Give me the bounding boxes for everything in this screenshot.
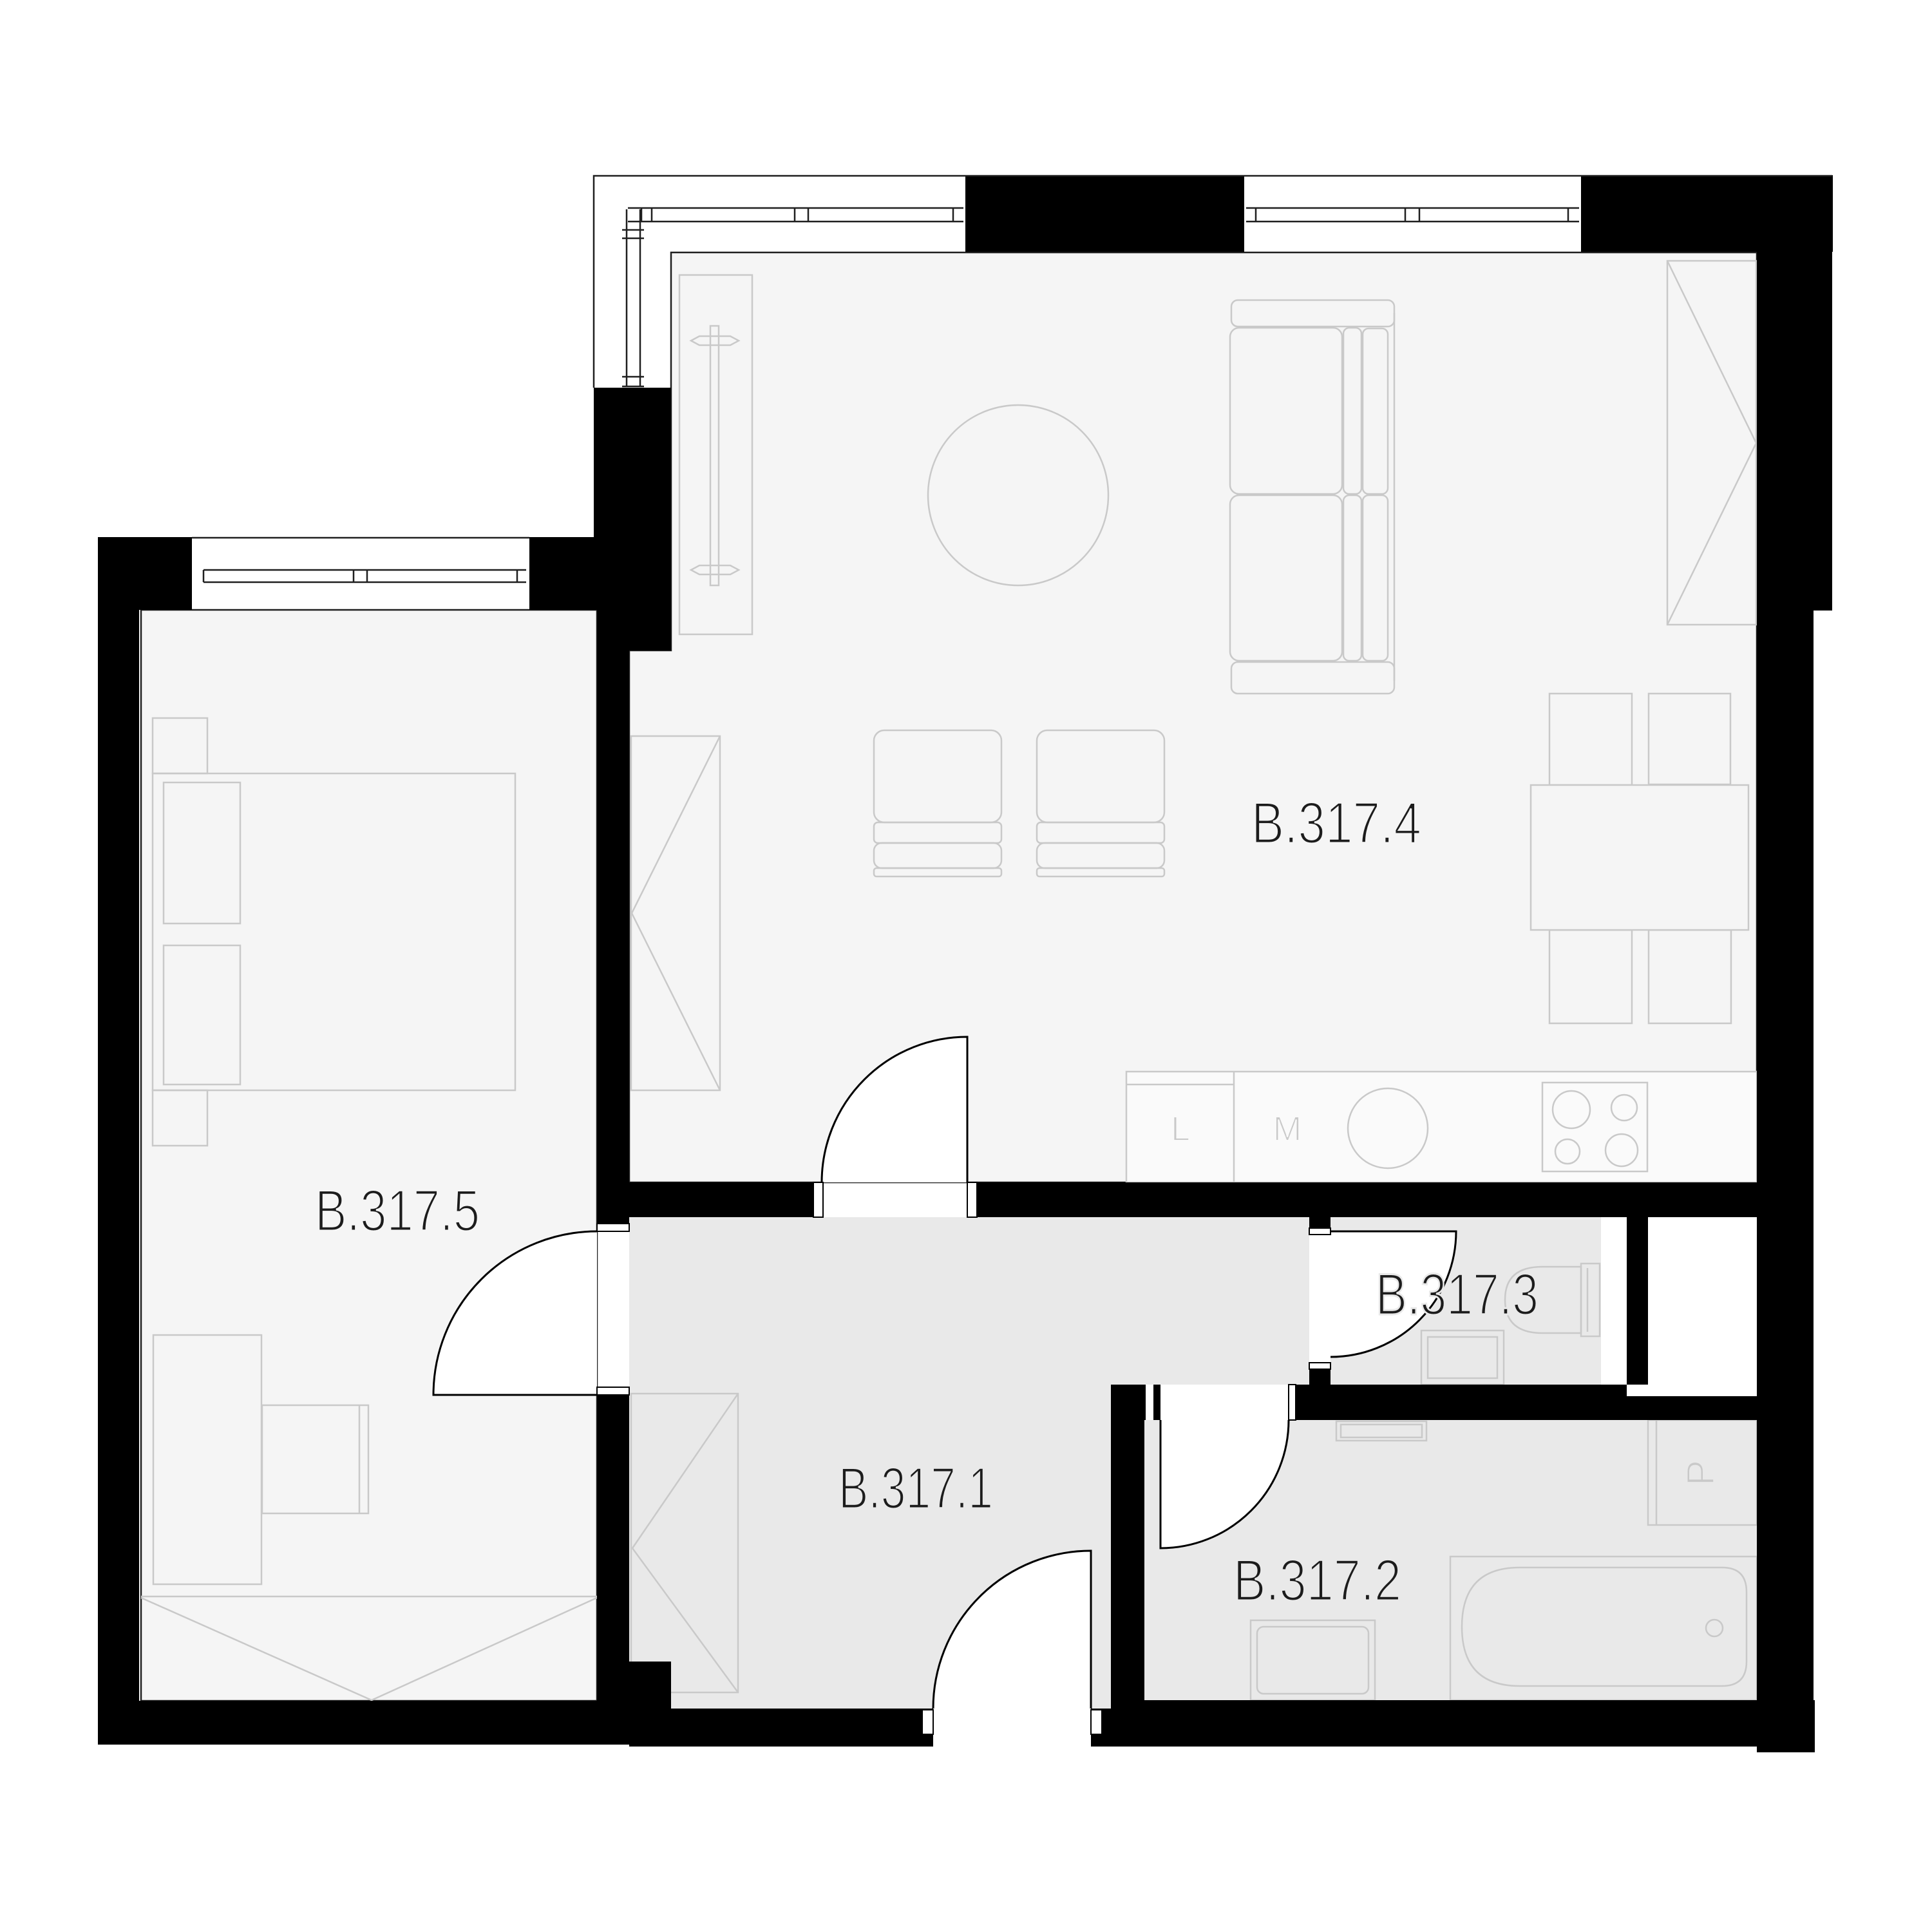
svg-text:B.317.3: B.317.3 bbox=[1376, 1262, 1539, 1327]
svg-text:B.317.4: B.317.4 bbox=[1251, 791, 1421, 856]
svg-text:M: M bbox=[1273, 1110, 1302, 1148]
svg-text:L: L bbox=[1171, 1110, 1190, 1148]
svg-text:B.317.2: B.317.2 bbox=[1233, 1548, 1401, 1613]
svg-text:P: P bbox=[1679, 1460, 1722, 1486]
svg-text:B.317.5: B.317.5 bbox=[315, 1179, 480, 1244]
svg-text:B.317.1: B.317.1 bbox=[838, 1456, 993, 1521]
